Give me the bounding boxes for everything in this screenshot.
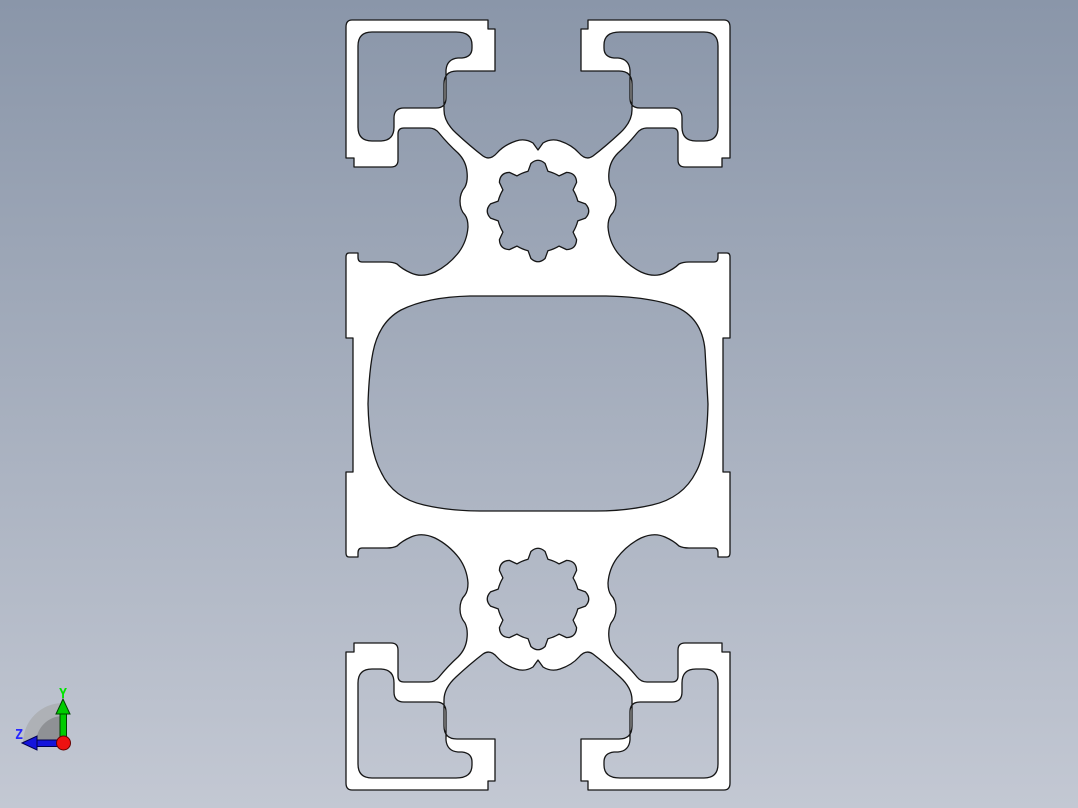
cad-canvas[interactable]: Y Z (0, 0, 1078, 808)
x-axis-origin-dot (57, 736, 71, 750)
y-axis-label: Y (59, 687, 67, 702)
z-axis-label: Z (15, 728, 23, 743)
viewport-background (0, 0, 1078, 808)
cad-viewport[interactable]: Y Z (0, 0, 1078, 808)
